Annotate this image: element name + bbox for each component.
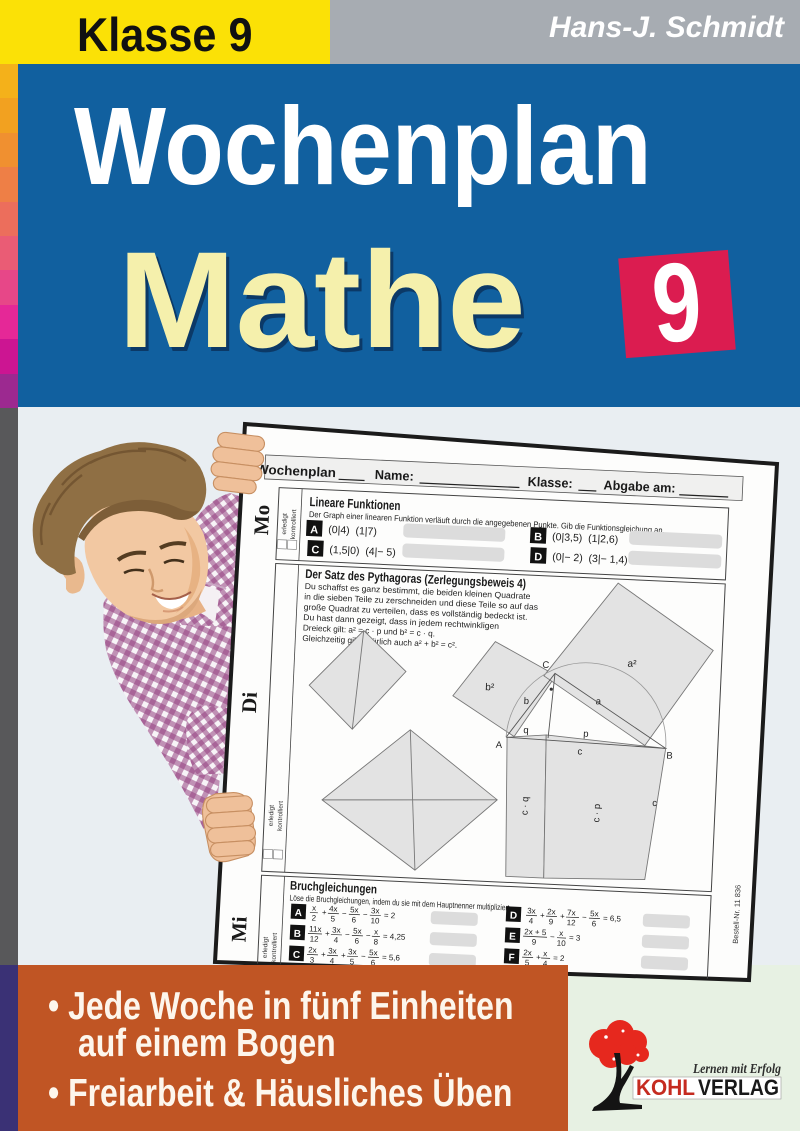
svg-text:= 2: = 2	[553, 954, 565, 964]
svg-text:KOHL: KOHL	[636, 1075, 695, 1100]
svg-text:erledigt: erledigt	[268, 805, 276, 827]
svg-text:a²: a²	[627, 659, 637, 670]
svg-text:= 2: = 2	[384, 911, 396, 921]
svg-text:7x: 7x	[567, 908, 576, 917]
svg-text:x: x	[559, 929, 563, 938]
svg-text:C: C	[311, 544, 320, 556]
svg-text:kontrolliert: kontrolliert	[271, 933, 279, 963]
svg-text:Lernen mit Erfolg: Lernen mit Erfolg	[692, 1061, 781, 1076]
svg-text:c · p: c · p	[591, 804, 603, 823]
svg-text:kontrolliert: kontrolliert	[290, 509, 298, 539]
svg-text:5x: 5x	[369, 948, 378, 957]
svg-text:erledigt: erledigt	[281, 513, 289, 535]
svg-text:+: +	[560, 912, 565, 921]
svg-text:+: +	[341, 951, 346, 960]
svg-text:3x: 3x	[348, 947, 357, 956]
svg-text:−: −	[345, 930, 350, 939]
svg-text:= 3: = 3	[569, 933, 581, 943]
svg-text:= 5,6: = 5,6	[382, 953, 401, 963]
svg-text:A: A	[310, 524, 319, 536]
svg-text:B: B	[294, 929, 302, 940]
svg-text:2x: 2x	[547, 907, 556, 916]
svg-text:Klasse:: Klasse:	[527, 474, 573, 491]
svg-text:= 6,5: = 6,5	[603, 914, 622, 924]
svg-text:q: q	[523, 725, 529, 736]
svg-text:−: −	[582, 913, 587, 922]
svg-text:VERLAG: VERLAG	[698, 1075, 779, 1100]
svg-text:10: 10	[557, 939, 567, 948]
svg-text:p: p	[583, 729, 589, 740]
svg-text:5x: 5x	[350, 905, 359, 914]
svg-text:−: −	[361, 952, 366, 961]
svg-text:−: −	[342, 909, 347, 918]
svg-text:+: +	[321, 950, 326, 959]
svg-text:F: F	[508, 953, 515, 964]
svg-text:3x: 3x	[527, 906, 536, 915]
svg-text:c: c	[652, 798, 657, 809]
svg-text:−: −	[366, 931, 371, 940]
svg-text:Di: Di	[237, 691, 262, 713]
svg-text:+: +	[536, 953, 541, 962]
svg-text:12: 12	[310, 934, 320, 943]
svg-text:E: E	[509, 932, 516, 943]
svg-text:b: b	[523, 696, 529, 707]
svg-text:2x: 2x	[523, 948, 532, 957]
svg-text:erledigt: erledigt	[262, 936, 270, 958]
svg-text:12: 12	[567, 918, 577, 927]
svg-text:+: +	[540, 911, 545, 920]
svg-text:11x: 11x	[309, 924, 322, 934]
svg-text:5x: 5x	[353, 926, 362, 935]
svg-text:C: C	[293, 950, 301, 961]
svg-text:B: B	[666, 750, 673, 761]
svg-text:B: B	[534, 531, 543, 543]
svg-text:10: 10	[370, 916, 380, 925]
svg-text:+: +	[322, 908, 327, 917]
svg-text:= 4,25: = 4,25	[383, 932, 406, 942]
svg-text:C: C	[542, 660, 549, 671]
svg-text:x: x	[312, 904, 316, 913]
svg-text:c: c	[577, 746, 582, 757]
svg-text:Mi: Mi	[227, 916, 252, 943]
svg-text:3x: 3x	[328, 946, 337, 955]
svg-text:D: D	[510, 911, 518, 922]
svg-text:c · q: c · q	[520, 796, 532, 815]
svg-text:2x: 2x	[308, 945, 317, 954]
svg-text:3x: 3x	[371, 906, 380, 915]
svg-text:2x + 5: 2x + 5	[524, 927, 547, 937]
svg-text:x: x	[374, 927, 378, 936]
svg-text:−: −	[363, 910, 368, 919]
svg-text:b²: b²	[485, 682, 495, 693]
svg-text:D: D	[534, 551, 543, 563]
svg-text:Name:: Name:	[375, 467, 415, 484]
svg-text:(0|4) (1|7): (0|4) (1|7)	[328, 524, 377, 538]
svg-text:3x: 3x	[332, 925, 341, 934]
svg-text:+: +	[325, 929, 330, 938]
svg-text:kontrolliert: kontrolliert	[277, 801, 285, 831]
svg-text:4x: 4x	[329, 904, 338, 913]
svg-text:−: −	[550, 932, 555, 941]
svg-text:x: x	[543, 949, 547, 958]
svg-text:5x: 5x	[590, 909, 599, 918]
svg-text:A: A	[294, 908, 302, 919]
svg-text:Mo: Mo	[249, 504, 274, 535]
svg-text:A: A	[495, 740, 502, 751]
